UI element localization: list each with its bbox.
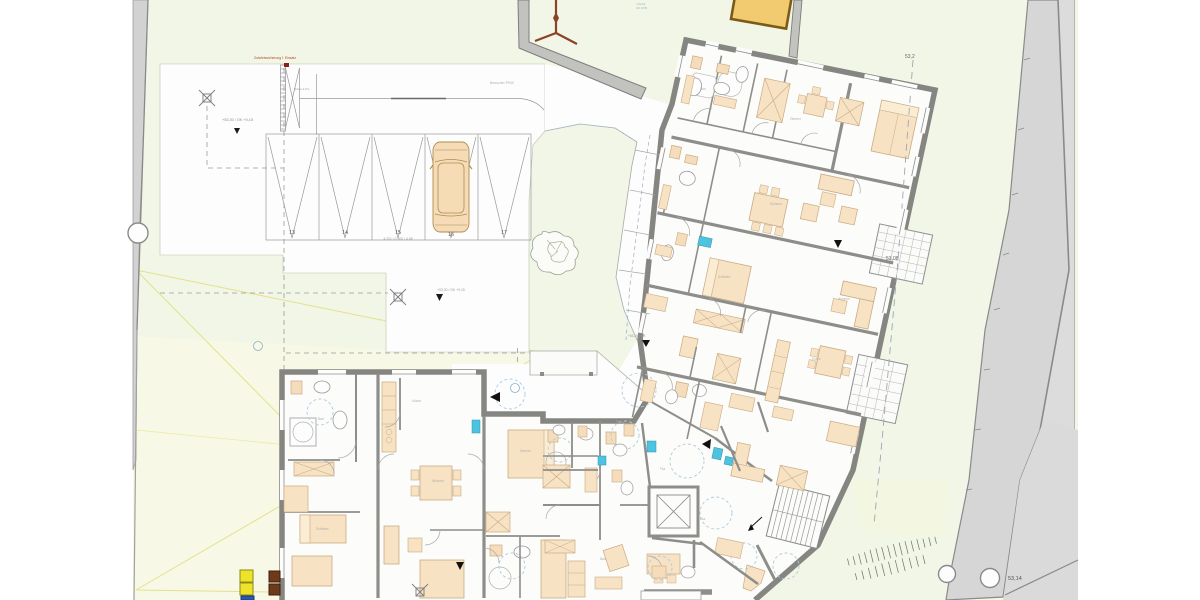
svg-text:+53,655 WK: +53,655 WK: [628, 334, 647, 338]
svg-text:Wohnen: Wohnen: [770, 202, 782, 206]
svg-text:Bad: Bad: [318, 417, 324, 421]
svg-text:4,201 / 0,500 / 4,88: 4,201 / 0,500 / 4,88: [383, 237, 412, 241]
svg-text:Wohnen: Wohnen: [838, 297, 850, 301]
svg-text:Flur: Flur: [660, 467, 666, 471]
svg-text:53,14: 53,14: [1008, 576, 1022, 582]
svg-text:OK FFB: OK FFB: [636, 6, 647, 10]
svg-text:53,08: 53,08: [886, 256, 899, 262]
svg-text:Bad: Bad: [600, 557, 606, 561]
svg-text:53,2: 53,2: [905, 54, 915, 60]
svg-text:Zimmer: Zimmer: [520, 449, 532, 453]
svg-text:Zimmer: Zimmer: [790, 117, 802, 121]
svg-text:15: 15: [395, 230, 401, 236]
svg-text:Bad: Bad: [700, 87, 706, 91]
svg-text:Zufahrtssicherung f. Einsatz: Zufahrtssicherung f. Einsatz: [254, 56, 296, 60]
svg-text:Flur: Flur: [700, 517, 706, 521]
svg-text:+53,30 / OK +0,15: +53,30 / OK +0,15: [222, 118, 253, 122]
svg-text:Schlafen: Schlafen: [316, 527, 329, 531]
svg-text:Küche: Küche: [412, 399, 421, 403]
svg-text:Besucher PKW: Besucher PKW: [490, 81, 514, 85]
svg-text:17: 17: [501, 230, 507, 236]
svg-text:Essen: Essen: [812, 357, 821, 361]
svg-text:Schlafen: Schlafen: [718, 275, 731, 279]
svg-text:Wohnen: Wohnen: [432, 479, 444, 483]
svg-text:13: 13: [289, 230, 295, 236]
svg-text:Breite 3,5m: Breite 3,5m: [294, 87, 310, 91]
svg-text:14: 14: [342, 230, 348, 236]
svg-text:16: 16: [448, 232, 454, 238]
svg-text:+53,30 / OK +0,15: +53,30 / OK +0,15: [437, 288, 465, 292]
